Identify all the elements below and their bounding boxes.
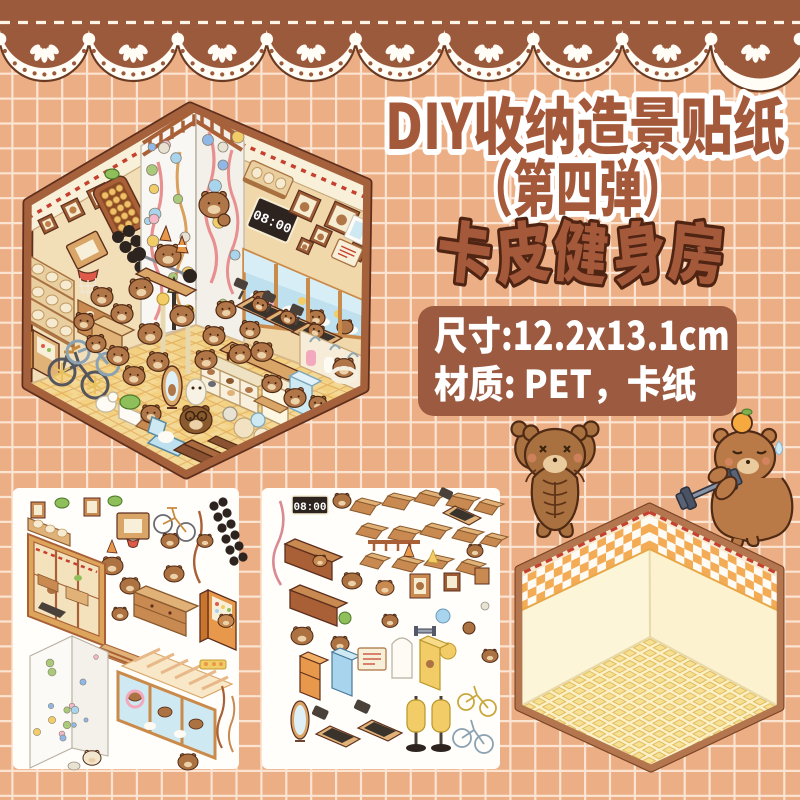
svg-text:08:00: 08:00 <box>293 502 326 514</box>
